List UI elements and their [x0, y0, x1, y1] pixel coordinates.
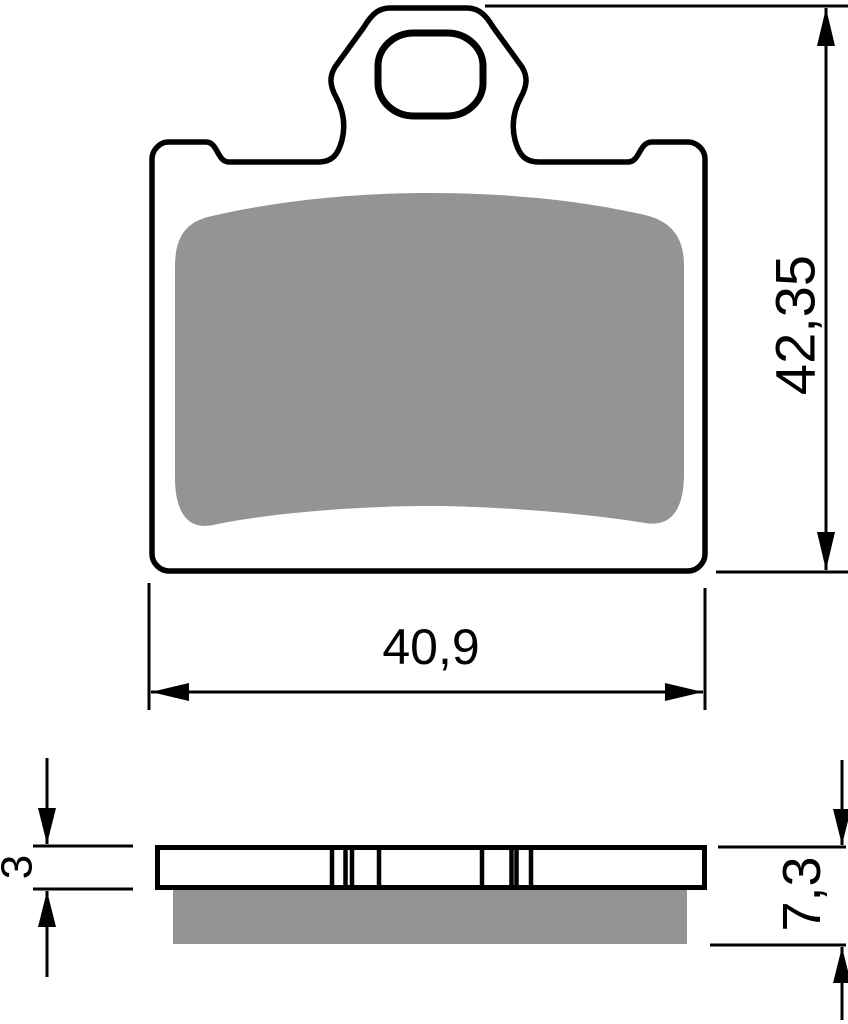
dimension-label-height: 42,35 — [764, 255, 827, 395]
arrowhead-down — [38, 808, 56, 844]
dimension-label-total-thickness: 7,3 — [772, 856, 832, 931]
dimension-plate-thickness-3: 3 — [0, 758, 133, 977]
brake-pad-drawing: 42,35 40,9 — [0, 0, 848, 1024]
tab-hole — [378, 33, 483, 116]
friction-material-front — [175, 193, 684, 526]
arrowhead-right — [665, 683, 703, 701]
front-view — [152, 8, 705, 571]
dimension-label-plate-thickness: 3 — [0, 855, 41, 879]
dimension-total-thickness-7-3: 7,3 — [710, 760, 848, 1020]
dimension-label-width: 40,9 — [382, 619, 479, 675]
side-view — [158, 848, 705, 945]
dimension-width-40-9: 40,9 — [149, 583, 705, 710]
arrowhead-up — [817, 8, 835, 46]
arrowhead-down — [817, 532, 835, 570]
technical-drawing-canvas: 42,35 40,9 — [0, 0, 848, 1024]
friction-material-side — [173, 888, 687, 944]
backing-plate-side — [158, 848, 705, 888]
arrowhead-up — [38, 891, 56, 927]
arrowhead-left — [151, 683, 189, 701]
